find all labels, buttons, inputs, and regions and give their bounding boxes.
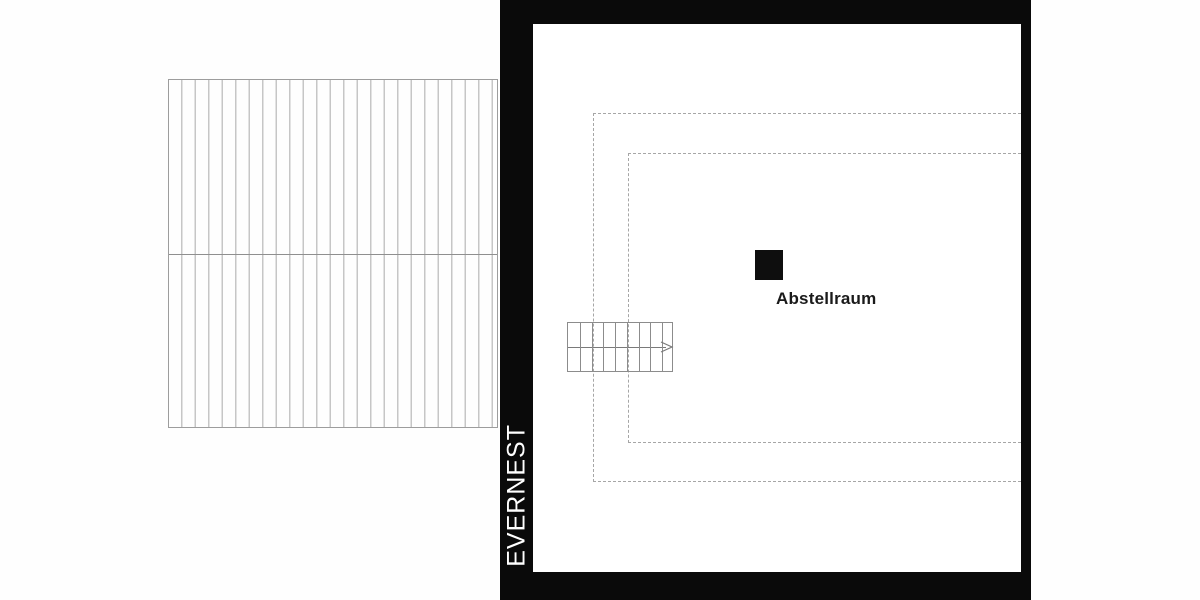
storage-room-marker [755,250,783,280]
room-label: Abstellraum [776,289,876,309]
stair-riser-line [592,323,593,371]
stair-walkline [568,347,666,348]
roof-hatch-drawing [168,79,498,428]
brand-logo-text: EVERNEST [502,424,531,567]
stair-riser-line [639,323,640,371]
floor-plan-canvas: EVERNEST Abstellraum [0,0,1200,600]
plan-sheet: EVERNEST Abstellraum [500,0,1031,600]
stair-direction-arrow-icon [659,340,674,355]
stair-riser-line [627,323,628,371]
attic-plan-interior: Abstellraum [533,24,1021,572]
stair-riser-line [580,323,581,371]
stair-riser-line [603,323,604,371]
brand-bar: EVERNEST [500,0,533,600]
stair-riser-line [615,323,616,371]
roof-ridge-line [169,254,497,255]
stair [567,322,673,372]
stair-riser-line [650,323,651,371]
